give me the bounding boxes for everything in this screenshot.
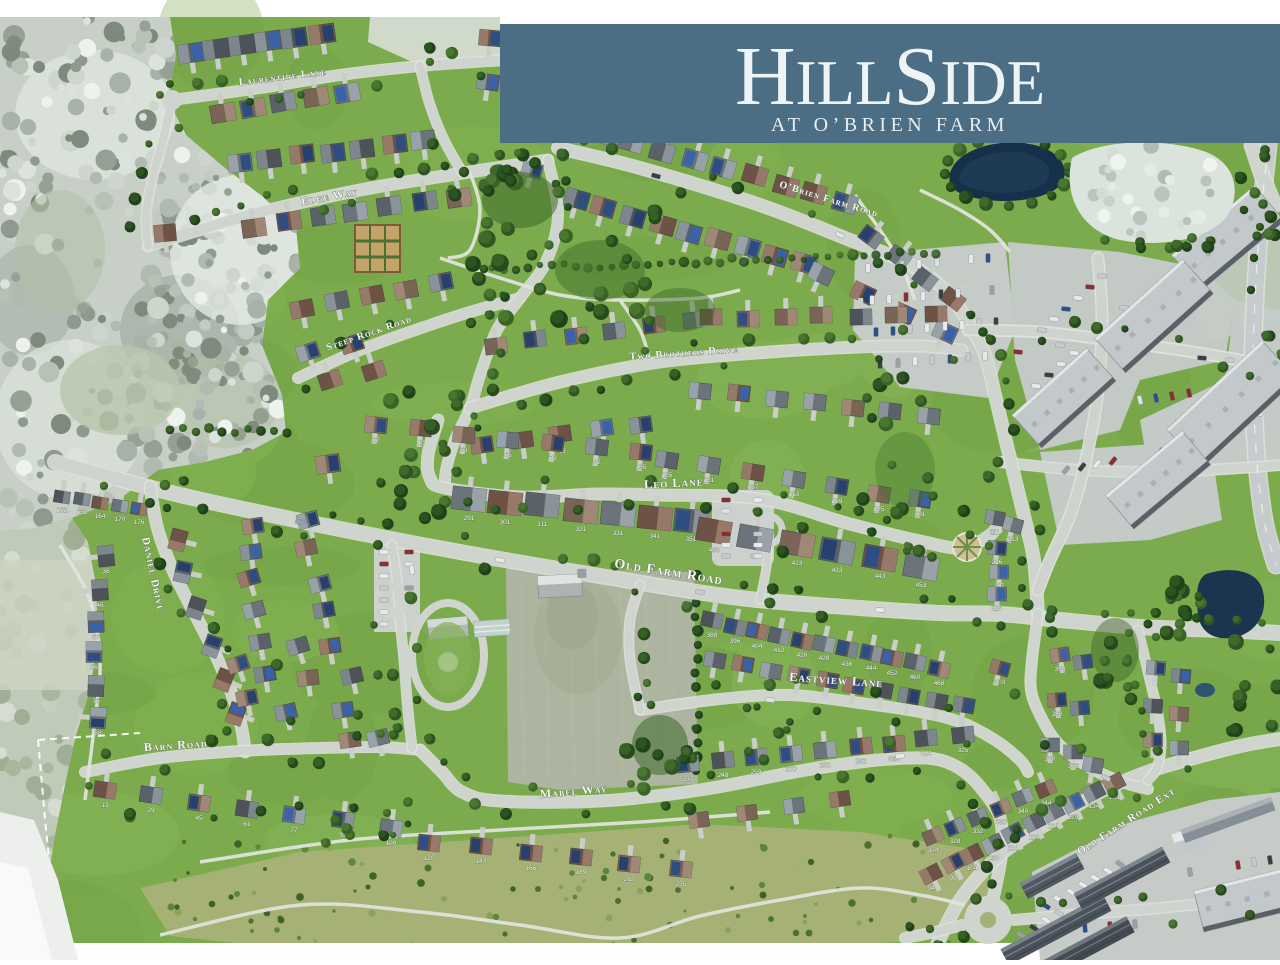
svg-text:104: 104	[967, 865, 978, 872]
svg-text:336: 336	[996, 819, 1007, 826]
svg-text:248: 248	[718, 772, 729, 779]
svg-text:76: 76	[92, 698, 100, 705]
svg-text:340: 340	[1018, 808, 1029, 815]
svg-text:396: 396	[730, 638, 741, 645]
svg-text:366: 366	[1068, 763, 1079, 770]
svg-text:292: 292	[856, 758, 867, 765]
svg-text:388: 388	[707, 632, 718, 639]
svg-text:137: 137	[748, 484, 759, 491]
svg-text:109: 109	[988, 855, 999, 862]
svg-text:452: 452	[887, 670, 898, 677]
svg-text:324: 324	[928, 847, 939, 854]
svg-text:213: 213	[1008, 536, 1019, 543]
svg-text:311: 311	[537, 521, 548, 528]
svg-text:404: 404	[752, 643, 763, 650]
svg-text:332: 332	[973, 828, 984, 835]
svg-text:114: 114	[1008, 845, 1019, 852]
svg-text:235: 235	[676, 881, 687, 888]
svg-text:27: 27	[372, 437, 380, 444]
svg-text:134: 134	[1089, 803, 1100, 810]
svg-text:189: 189	[576, 869, 587, 876]
svg-text:423: 423	[792, 560, 803, 567]
svg-text:259: 259	[751, 769, 762, 776]
svg-text:398: 398	[1055, 666, 1066, 673]
svg-text:120: 120	[424, 855, 435, 862]
svg-text:53: 53	[460, 447, 468, 454]
svg-text:94: 94	[927, 885, 935, 892]
svg-text:403: 403	[709, 547, 720, 554]
svg-text:428: 428	[819, 655, 830, 662]
svg-text:170: 170	[115, 516, 126, 523]
svg-text:412: 412	[774, 647, 785, 654]
svg-text:29: 29	[147, 807, 155, 814]
svg-text:291: 291	[464, 515, 475, 522]
svg-text:185: 185	[874, 506, 885, 513]
svg-text:321: 321	[576, 526, 587, 533]
svg-text:444: 444	[866, 665, 877, 672]
svg-text:66: 66	[90, 664, 98, 671]
svg-text:433: 433	[832, 567, 843, 574]
svg-text:119: 119	[1029, 834, 1040, 841]
svg-text:201: 201	[915, 511, 926, 518]
svg-text:121: 121	[704, 477, 715, 484]
svg-text:468: 468	[934, 680, 945, 687]
svg-text:166: 166	[526, 865, 537, 872]
svg-text:99: 99	[949, 875, 957, 882]
svg-text:341: 341	[650, 533, 661, 540]
svg-text:237: 237	[683, 776, 694, 783]
svg-text:212: 212	[624, 876, 635, 883]
svg-text:370: 370	[1045, 756, 1056, 763]
svg-text:77: 77	[290, 827, 298, 834]
svg-text:153: 153	[789, 491, 800, 498]
svg-text:143: 143	[476, 858, 487, 865]
svg-text:382: 382	[1052, 711, 1063, 718]
svg-text:36: 36	[102, 568, 110, 575]
svg-text:AT O’BRIEN FARM: AT O’BRIEN FARM	[771, 114, 1009, 136]
svg-text:281: 281	[820, 762, 831, 769]
svg-text:13: 13	[101, 802, 109, 809]
svg-text:211: 211	[990, 529, 1001, 536]
svg-text:420: 420	[797, 652, 808, 659]
svg-text:443: 443	[875, 573, 886, 580]
svg-text:109: 109	[386, 840, 397, 847]
svg-text:129: 129	[1068, 814, 1079, 821]
svg-text:331: 331	[613, 530, 624, 537]
svg-text:92: 92	[593, 459, 601, 466]
svg-text:61: 61	[243, 821, 251, 828]
svg-text:270: 270	[786, 766, 797, 773]
svg-text:301: 301	[500, 519, 511, 526]
svg-text:314: 314	[921, 750, 932, 757]
svg-text:158: 158	[77, 509, 88, 516]
svg-text:105: 105	[636, 464, 647, 471]
svg-text:152: 152	[57, 507, 68, 514]
svg-text:325: 325	[958, 747, 969, 754]
svg-text:328: 328	[950, 838, 961, 845]
svg-text:46: 46	[96, 602, 104, 609]
svg-text:45: 45	[195, 815, 203, 822]
svg-text:460: 460	[910, 674, 921, 681]
svg-text:40: 40	[417, 440, 425, 447]
svg-text:303: 303	[995, 679, 1006, 686]
svg-text:225: 225	[992, 605, 1003, 612]
svg-text:436: 436	[842, 661, 853, 668]
svg-text:176: 176	[134, 519, 145, 526]
svg-text:56: 56	[92, 634, 100, 641]
svg-text:66: 66	[504, 452, 512, 459]
svg-text:453: 453	[916, 582, 927, 589]
svg-text:164: 164	[95, 513, 106, 520]
svg-text:79: 79	[549, 455, 557, 462]
svg-text:124: 124	[1048, 823, 1059, 830]
